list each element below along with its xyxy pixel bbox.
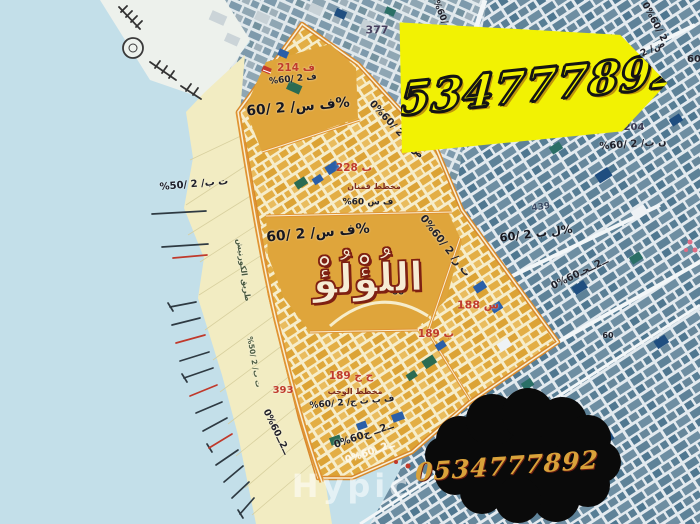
marina-basin-icon <box>123 38 143 58</box>
watermark: Hypic <box>292 467 412 505</box>
district-title: اللُؤْلُؤْ <box>312 254 424 304</box>
map: 377214 ف%60/ 2 ف60/ 2 /ف س%0%60/ 2 /ض ر2… <box>0 0 700 524</box>
